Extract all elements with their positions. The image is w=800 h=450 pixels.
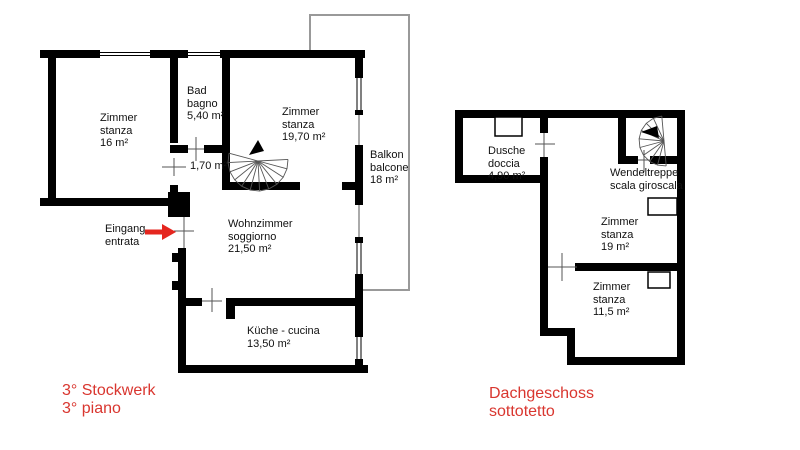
room-label-zimmer-19: Zimmer stanza 19 m²	[601, 216, 638, 254]
entrance-arrow-icon	[145, 224, 176, 240]
room-label-wohnzimmer: Wohnzimmer soggiorno 21,50 m²	[228, 218, 293, 256]
stair-direction-arrow	[249, 140, 264, 155]
room-label-dusche: Dusche doccia 4,90 m²	[488, 145, 525, 183]
left-plan-caption: 3° Stockwerk 3° piano	[62, 382, 156, 418]
stair-direction-arrow	[641, 126, 659, 138]
right-plan-door-marks	[535, 133, 650, 281]
room-label-kueche: Küche - cucina 13,50 m²	[247, 325, 320, 350]
room-label-zimmer-16: Zimmer stanza 16 m²	[100, 112, 137, 150]
entrance-label: Eingang entrata	[105, 223, 145, 248]
room-label-zimmer-115: Zimmer stanza 11,5 m²	[593, 281, 630, 319]
skylight-windows	[495, 117, 677, 288]
room-label-balkon: Balkon balcone 18 m²	[370, 149, 409, 187]
stair-label: Wendeltreppe scala giroscala	[610, 167, 683, 192]
room-label-bad: Bad bagno 5,40 m²	[187, 85, 224, 123]
room-label-zimmer-1970: Zimmer stanza 19,70 m²	[282, 106, 325, 144]
right-plan-caption: Dachgeschoss sottotetto	[489, 385, 594, 421]
hallway-area-label: 1,70 m²	[190, 160, 227, 172]
floorplan-page: Zimmer stanza 16 m² Bad bagno 5,40 m² Zi…	[0, 0, 800, 450]
